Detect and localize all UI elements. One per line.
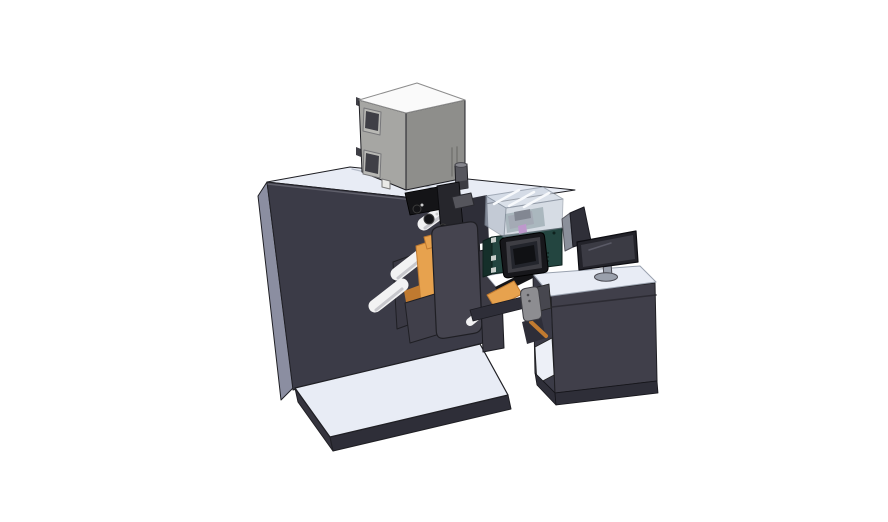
printer-pad-2 bbox=[491, 255, 496, 261]
machine-render: Main cabinet Base plate Electrical enclo… bbox=[0, 0, 888, 522]
canister-cap bbox=[455, 163, 467, 168]
operator-desk: Operator desk bbox=[533, 266, 658, 405]
cad-render-canvas: Main cabinet Base plate Electrical enclo… bbox=[0, 0, 888, 522]
safety-hood: Transparent safety hood Print head bbox=[485, 187, 563, 237]
box-hinge-bottom bbox=[356, 147, 361, 157]
pendant-button-2 bbox=[528, 300, 531, 303]
mech-speck-1 bbox=[421, 204, 424, 207]
box-window-glass-2 bbox=[365, 153, 379, 174]
printer-screw bbox=[553, 232, 556, 235]
printer-pad-1 bbox=[491, 237, 496, 243]
printer-unit: Printer unit with touchscreen Touchscree… bbox=[483, 187, 563, 278]
desk-front-face bbox=[551, 283, 657, 393]
box-window-glass-1 bbox=[365, 111, 379, 131]
mech-speck-2 bbox=[436, 213, 439, 216]
monitor-stand-base bbox=[595, 273, 618, 281]
mech-gear-2 bbox=[424, 214, 434, 224]
box-foot-plate bbox=[382, 179, 390, 189]
printer-pad-3 bbox=[491, 267, 496, 273]
touchscreen: Touchscreen bbox=[500, 233, 548, 278]
printer-left-side bbox=[483, 237, 492, 277]
mech-gear-1 bbox=[413, 205, 421, 213]
electrical-box: Electrical enclosure bbox=[356, 83, 465, 190]
pendant-body bbox=[521, 287, 542, 321]
pendant-button-1 bbox=[527, 294, 530, 297]
